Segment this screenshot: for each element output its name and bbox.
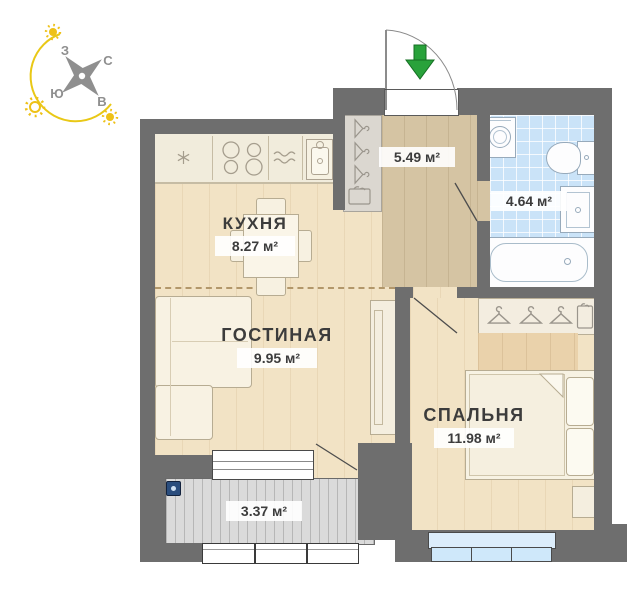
bathroom-area-badge: 4.64 м² [491, 191, 567, 211]
living-label: ГОСТИНАЯ [197, 325, 357, 346]
floor-plan: З С Ю В [0, 0, 639, 600]
hallway-area-badge: 5.49 м² [379, 147, 455, 167]
bedroom-label: СПАЛЬНЯ [404, 405, 544, 426]
kitchen-label: КУХНЯ [195, 214, 315, 234]
kitchen-area-badge: 8.27 м² [215, 236, 295, 256]
bedroom-door-swing [414, 298, 457, 333]
entrance-arrow-icon [402, 44, 438, 82]
bedroom-area-badge: 11.98 м² [434, 428, 514, 448]
door-swing-lines [0, 0, 639, 600]
balcony-door-swing [316, 444, 357, 470]
bathroom-door-swing [455, 183, 477, 221]
balcony-area-badge: 3.37 м² [226, 501, 302, 521]
living-area-badge: 9.95 м² [237, 348, 317, 368]
